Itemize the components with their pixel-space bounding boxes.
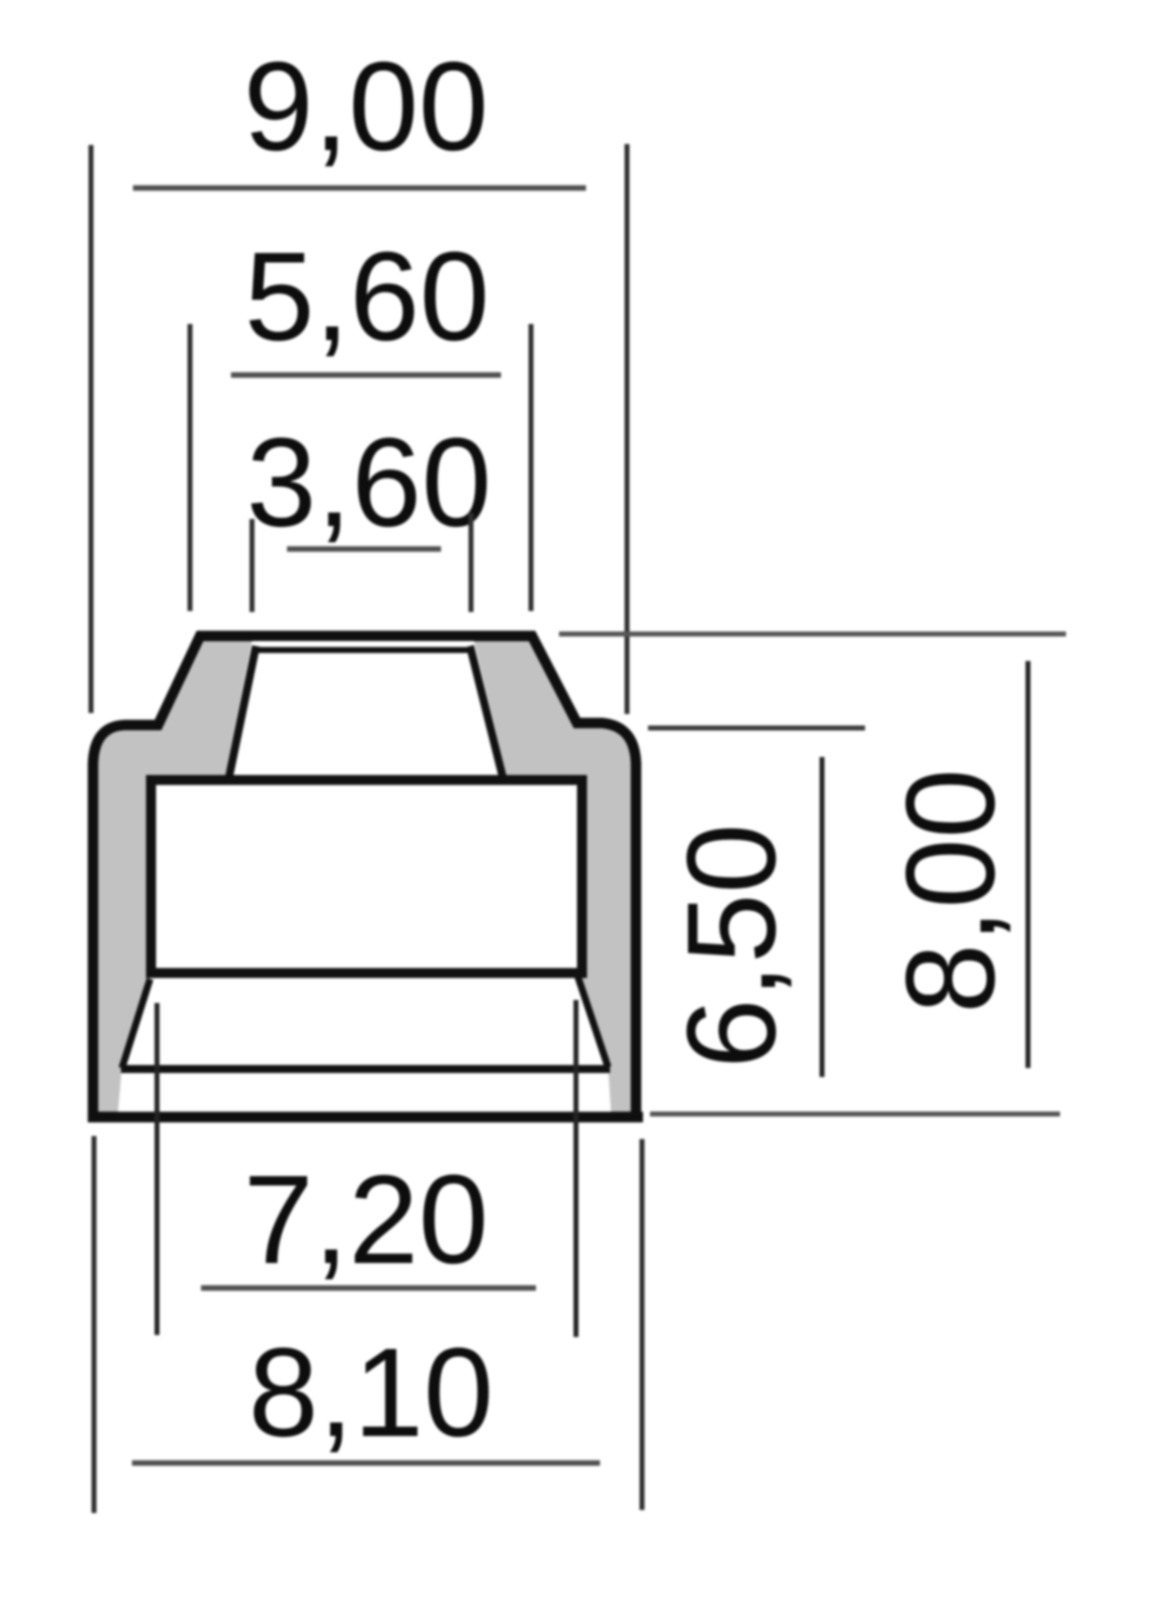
svg-text:6,50: 6,50 (661, 823, 802, 1068)
svg-text:7,20: 7,20 (243, 1149, 488, 1290)
svg-text:9,00: 9,00 (243, 36, 488, 177)
svg-text:3,60: 3,60 (246, 412, 491, 553)
svg-text:5,60: 5,60 (244, 226, 489, 367)
svg-text:8,10: 8,10 (248, 1322, 493, 1463)
svg-text:8,00: 8,00 (880, 768, 1021, 1013)
